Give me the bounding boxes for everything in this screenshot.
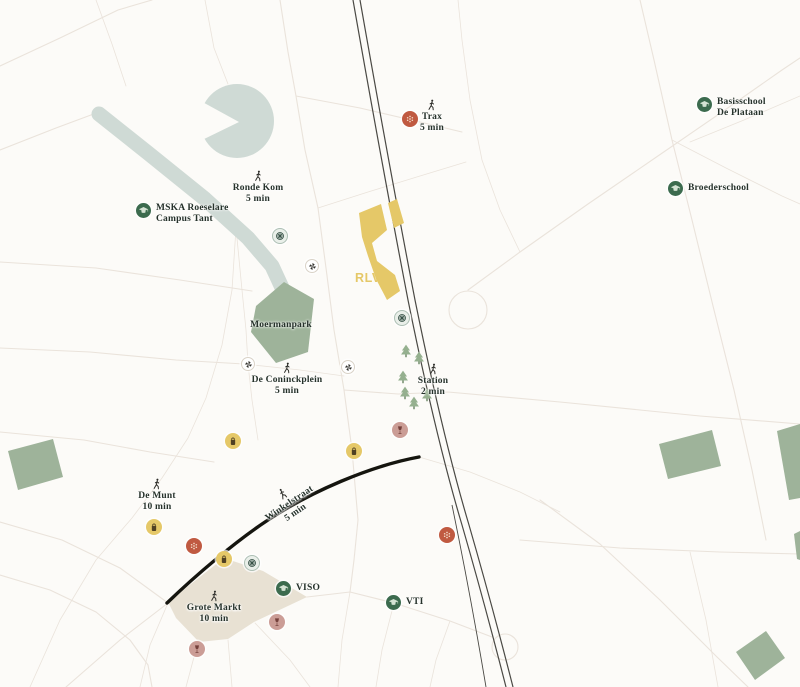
marker-label: Station	[418, 376, 448, 387]
green-areas	[8, 282, 800, 680]
pinwheel-icon	[341, 360, 355, 374]
marker-label: VTI	[406, 597, 424, 608]
walking-person-icon	[254, 170, 263, 182]
school-icon	[386, 595, 401, 610]
marker-station: Station 2 min	[418, 363, 448, 397]
city-map: RLVD	[0, 0, 800, 687]
wheel-icon	[244, 555, 260, 571]
marker-mska: MSKA Roeselare Campus Tant	[136, 203, 229, 224]
marker-sublabel: 5 min	[246, 194, 270, 205]
walking-person-icon	[429, 363, 438, 375]
marker-label: Trax	[422, 112, 442, 123]
marker-label: De Munt	[138, 491, 176, 502]
marker-label: Broederschool	[688, 183, 749, 194]
marker-trax: Trax 5 min	[420, 99, 444, 133]
marker-de-munt: De Munt 10 min	[138, 478, 176, 512]
marker-sublabel: De Plataan	[717, 108, 766, 119]
marker-label: Basisschool	[717, 97, 766, 108]
wine-glass-icon	[392, 422, 408, 438]
marker-sublabel: Campus Tant	[156, 214, 229, 225]
school-icon	[276, 581, 291, 596]
wine-glass-icon	[189, 641, 205, 657]
food-icon	[402, 111, 418, 127]
road-network	[0, 0, 800, 687]
marker-label: De Coninckplein	[252, 375, 323, 386]
marker-sublabel: 10 min	[200, 614, 229, 625]
walking-person-icon	[428, 99, 437, 111]
marker-sublabel: 5 min	[275, 386, 299, 397]
marker-basisschool: Basisschool De Plataan	[697, 97, 766, 118]
marker-coninckplein: De Coninckplein 5 min	[252, 362, 323, 396]
marker-moermanpark: Moermanpark	[250, 320, 312, 330]
walking-person-icon	[210, 590, 219, 602]
food-icon	[439, 527, 455, 543]
marker-label: Grote Markt	[187, 603, 242, 614]
school-icon	[668, 181, 683, 196]
marker-label: Ronde Kom	[233, 183, 284, 194]
wine-glass-icon	[269, 614, 285, 630]
pinwheel-icon	[305, 259, 319, 273]
wheel-icon	[394, 310, 410, 326]
marker-label: VISO	[296, 583, 320, 594]
shopping-bag-icon	[216, 551, 232, 567]
wheel-icon	[272, 228, 288, 244]
marker-sublabel: 5 min	[420, 123, 444, 134]
rlvd-site-label: RLVD	[355, 271, 391, 285]
marker-broederschool: Broederschool	[668, 181, 749, 196]
shopping-bag-icon	[146, 519, 162, 535]
marker-grote-markt: Grote Markt 10 min	[187, 590, 242, 624]
ronde-kom-pond	[197, 84, 274, 158]
walking-person-icon	[283, 362, 292, 374]
food-icon	[186, 538, 202, 554]
marker-viso: VISO	[276, 581, 320, 596]
school-icon	[697, 97, 712, 112]
shopping-bag-icon	[225, 433, 241, 449]
school-icon	[136, 203, 151, 218]
walking-person-icon	[153, 478, 162, 490]
marker-ronde-kom: Ronde Kom 5 min	[233, 170, 284, 204]
marker-sublabel: 10 min	[143, 502, 172, 513]
marker-label: MSKA Roeselare	[156, 203, 229, 214]
shopping-bag-icon	[346, 443, 362, 459]
marker-sublabel: 2 min	[421, 387, 445, 398]
map-canvas	[0, 0, 800, 687]
marker-vti: VTI	[386, 595, 424, 610]
